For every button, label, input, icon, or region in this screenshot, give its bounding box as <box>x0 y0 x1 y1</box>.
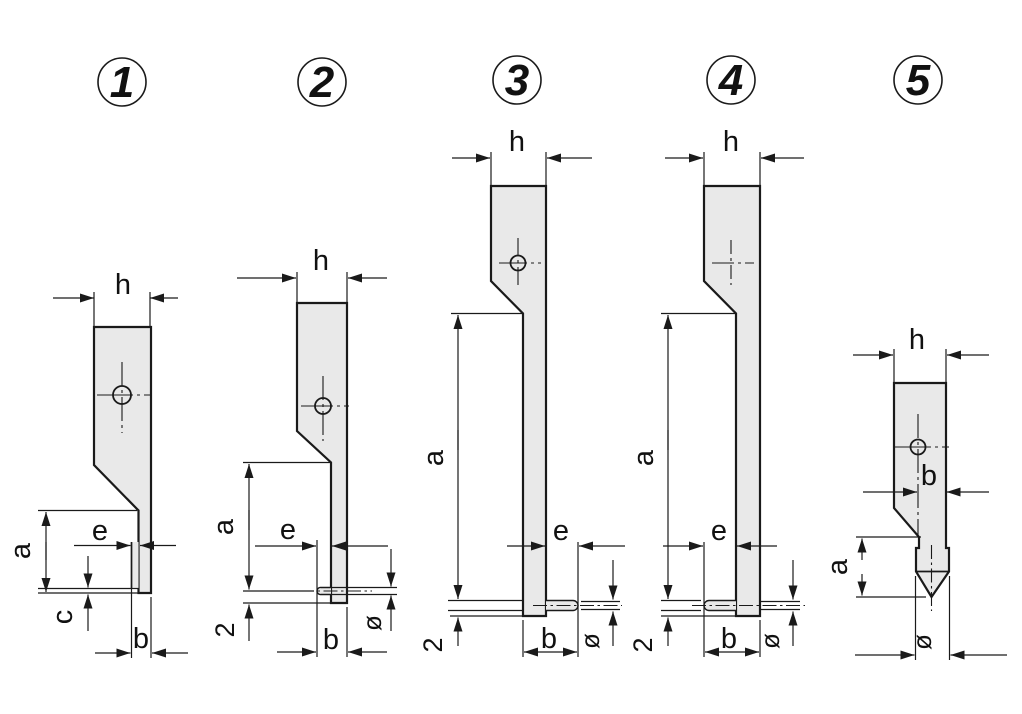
needle-parts-diagram: 1 h a c <box>0 0 1022 714</box>
figure-2-dim-h-label: h <box>313 245 329 277</box>
figure-2-dim-b-label: b <box>323 624 339 656</box>
figure-2-dim-e-label: e <box>280 514 296 546</box>
figure-5-dim-a-label: a <box>822 558 854 575</box>
figure-1-dim-e-label: e <box>92 515 108 547</box>
figure-4-dim-dia-label: ø <box>755 633 785 649</box>
figure-4-badge: 4 <box>707 56 755 105</box>
figure-5-number: 5 <box>906 56 931 105</box>
figure-3-dim-e-label: e <box>553 515 569 547</box>
figure-1-flange-fill <box>132 542 139 589</box>
figure-1-flange <box>132 542 139 589</box>
figure-4-dim-b-label: b <box>721 623 737 655</box>
figure-3-dim-h-label: h <box>509 126 525 158</box>
figure-4-number: 4 <box>718 56 743 105</box>
figure-1-dim-b-label: b <box>133 623 149 655</box>
figure-3-number: 3 <box>505 56 529 105</box>
figure-4-dim-e-label: e <box>711 515 727 547</box>
figure-5-dim-b-label: b <box>921 460 937 492</box>
figure-3-dim-a-label: a <box>418 449 450 466</box>
figure-5-badge: 5 <box>894 56 942 105</box>
figure-3-dim-dia-label: ø <box>575 633 605 649</box>
figure-1-dim-h-label: h <box>115 269 131 301</box>
figure-1-number: 1 <box>110 58 134 107</box>
figure-3-badge: 3 <box>493 56 541 105</box>
figure-1-badge: 1 <box>98 58 146 107</box>
figure-5-dim-dia-label: ø <box>907 634 937 650</box>
figure-3-dim-2-label: 2 <box>418 637 448 652</box>
figure-2-number: 2 <box>309 58 335 107</box>
figure-1-dim-a-label: a <box>5 542 37 559</box>
figure-4-dim-2-label: 2 <box>628 637 658 652</box>
figure-1-dim-c-label: c <box>47 610 79 625</box>
background <box>0 0 1022 714</box>
figure-2-badge: 2 <box>298 58 346 107</box>
figure-5-dim-h-label: h <box>909 324 925 356</box>
technical-drawing-page: 1 h a c <box>0 0 1022 714</box>
figure-2-dim-2-label: 2 <box>210 622 240 637</box>
figure-4-dim-a-label: a <box>628 449 660 466</box>
figure-2-dim-a-label: a <box>208 518 240 535</box>
figure-3-dim-b-label: b <box>541 623 557 655</box>
figure-4-dim-h-label: h <box>723 126 739 158</box>
figure-2-dim-dia-label: ø <box>357 615 387 631</box>
